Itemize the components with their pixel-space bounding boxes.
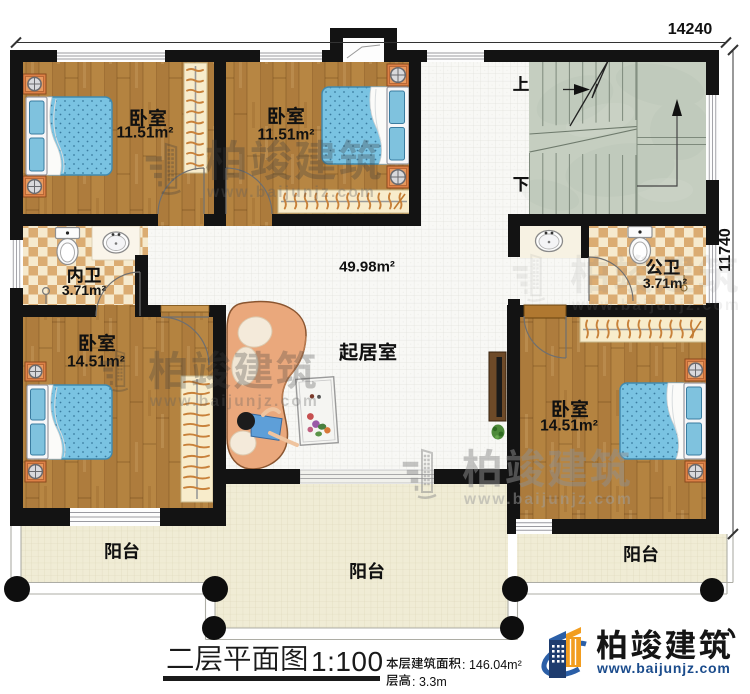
svg-text:: 3.3m: : 3.3m bbox=[412, 675, 447, 689]
svg-text:www.baijunjz.com: www.baijunjz.com bbox=[463, 491, 633, 508]
svg-text:1:100: 1:100 bbox=[311, 646, 384, 677]
svg-text:www.baijunjz.com: www.baijunjz.com bbox=[596, 660, 731, 676]
svg-text:www.baijunjz.com: www.baijunjz.com bbox=[206, 184, 376, 201]
svg-text:www.baijunjz.com: www.baijunjz.com bbox=[149, 393, 319, 410]
svg-text:49.98m²: 49.98m² bbox=[339, 258, 395, 275]
svg-text:www.baijunjz.com: www.baijunjz.com bbox=[571, 297, 741, 314]
svg-text:: 146.04m²: : 146.04m² bbox=[462, 658, 522, 672]
svg-text:11.51m²: 11.51m² bbox=[258, 127, 315, 144]
svg-text:14.51m²: 14.51m² bbox=[540, 418, 598, 435]
svg-text:3.71m²: 3.71m² bbox=[62, 282, 107, 298]
svg-text:11.51m²: 11.51m² bbox=[117, 125, 174, 142]
svg-text:14240: 14240 bbox=[668, 21, 713, 38]
